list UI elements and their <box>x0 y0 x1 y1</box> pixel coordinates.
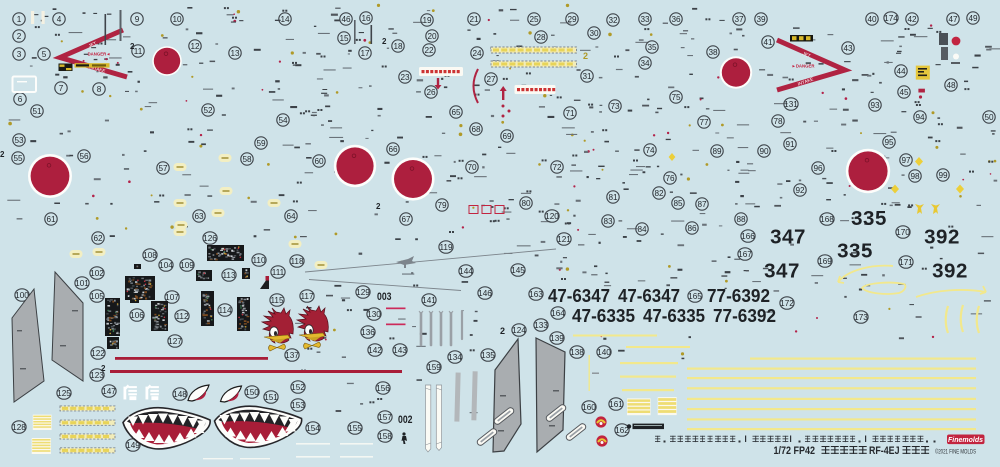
svg-text:8: 8 <box>97 85 102 94</box>
svg-text:44: 44 <box>896 67 906 76</box>
svg-text:118: 118 <box>290 257 303 266</box>
svg-text:77: 77 <box>699 118 709 127</box>
svg-text:20: 20 <box>427 32 437 41</box>
svg-text:22: 22 <box>424 46 434 55</box>
svg-text:77-6392: 77-6392 <box>707 286 770 306</box>
svg-text:148: 148 <box>173 390 187 399</box>
svg-text:41: 41 <box>763 38 773 47</box>
svg-text:32: 32 <box>608 16 618 25</box>
svg-text:84: 84 <box>637 225 647 234</box>
svg-text:121: 121 <box>557 235 571 244</box>
svg-text:1/72 FP42: 1/72 FP42 <box>774 445 816 457</box>
svg-text:65: 65 <box>451 108 461 117</box>
svg-text:134: 134 <box>448 353 462 362</box>
svg-text:127: 127 <box>168 337 182 346</box>
svg-text:69: 69 <box>502 132 512 141</box>
svg-text:6: 6 <box>18 95 23 104</box>
svg-text:172: 172 <box>780 299 794 308</box>
svg-text:70: 70 <box>467 163 477 172</box>
svg-text:168: 168 <box>820 215 834 224</box>
svg-text:18: 18 <box>393 42 403 51</box>
svg-text:77-6392: 77-6392 <box>713 306 776 326</box>
svg-text:45: 45 <box>899 88 909 97</box>
svg-text:15: 15 <box>339 34 349 43</box>
svg-text:2: 2 <box>101 364 106 373</box>
svg-text:392: 392 <box>932 260 968 283</box>
svg-text:96: 96 <box>813 164 823 173</box>
svg-text:DANGER◄: DANGER◄ <box>88 52 111 57</box>
svg-text:60: 60 <box>314 157 324 166</box>
svg-text:14: 14 <box>280 15 290 24</box>
svg-text:57: 57 <box>158 164 168 173</box>
svg-text:63: 63 <box>194 212 204 221</box>
svg-text:66: 66 <box>388 145 398 154</box>
svg-text:335: 335 <box>837 240 873 263</box>
svg-text:93: 93 <box>870 101 880 110</box>
svg-text:144: 144 <box>459 267 473 276</box>
svg-text:26: 26 <box>426 88 436 97</box>
svg-text:125: 125 <box>57 389 71 398</box>
svg-text:115: 115 <box>270 296 283 305</box>
svg-text:87: 87 <box>697 200 707 209</box>
svg-text:►DANGER: ►DANGER <box>792 64 816 69</box>
svg-text:120: 120 <box>545 212 559 221</box>
svg-text:61: 61 <box>46 215 56 224</box>
svg-text:91: 91 <box>785 140 795 149</box>
svg-text:46: 46 <box>341 15 351 24</box>
svg-text:85: 85 <box>673 199 683 208</box>
svg-text:136: 136 <box>361 328 375 337</box>
svg-text:64: 64 <box>286 212 296 221</box>
svg-text:37: 37 <box>734 15 744 24</box>
svg-text:347: 347 <box>770 226 806 249</box>
svg-text:4: 4 <box>57 15 62 24</box>
svg-text:56: 56 <box>79 152 89 161</box>
svg-text:143: 143 <box>393 346 407 355</box>
svg-text:114: 114 <box>218 306 231 315</box>
svg-text:58: 58 <box>242 155 252 164</box>
svg-text:50: 50 <box>984 113 994 122</box>
svg-text:171: 171 <box>899 258 913 267</box>
svg-text:90: 90 <box>759 147 769 156</box>
svg-text:73: 73 <box>610 102 620 111</box>
svg-text:102: 102 <box>90 269 104 278</box>
svg-text:101: 101 <box>75 279 89 288</box>
svg-text:2: 2 <box>382 37 387 46</box>
svg-text:109: 109 <box>180 261 194 270</box>
svg-text:80: 80 <box>521 199 531 208</box>
svg-text:16: 16 <box>361 14 371 23</box>
svg-text:52: 52 <box>203 106 213 115</box>
svg-text:83: 83 <box>603 217 613 226</box>
svg-text:78: 78 <box>773 117 783 126</box>
svg-text:161: 161 <box>609 400 623 409</box>
svg-text:002: 002 <box>398 414 413 426</box>
svg-text:170: 170 <box>896 228 910 237</box>
svg-text:31: 31 <box>582 72 592 81</box>
svg-text:159: 159 <box>427 363 441 372</box>
svg-text:54: 54 <box>278 116 288 125</box>
svg-text:169: 169 <box>818 257 832 266</box>
svg-text:104: 104 <box>159 261 173 270</box>
svg-text:74: 74 <box>645 146 655 155</box>
svg-text:23: 23 <box>400 73 410 82</box>
svg-text:43: 43 <box>843 44 853 53</box>
svg-text:111: 111 <box>272 268 285 277</box>
svg-text:33: 33 <box>640 15 650 24</box>
svg-text:167: 167 <box>738 250 752 259</box>
svg-text:158: 158 <box>378 432 392 441</box>
svg-text:2: 2 <box>0 150 5 159</box>
svg-text:146: 146 <box>478 289 492 298</box>
svg-text:98: 98 <box>910 172 920 181</box>
svg-text:36: 36 <box>671 15 681 24</box>
svg-text:113: 113 <box>222 271 235 280</box>
svg-text:122: 122 <box>91 349 105 358</box>
svg-text:47-6335: 47-6335 <box>572 306 635 326</box>
svg-text:©2021 FINE MOLDS: ©2021 FINE MOLDS <box>935 449 976 456</box>
svg-text:126: 126 <box>203 234 217 243</box>
svg-text:95: 95 <box>884 138 894 147</box>
svg-text:147: 147 <box>102 387 116 396</box>
svg-text:9: 9 <box>135 15 140 24</box>
svg-text:130: 130 <box>367 310 381 319</box>
svg-text:68: 68 <box>471 125 481 134</box>
svg-text:2: 2 <box>583 51 588 61</box>
svg-text:24: 24 <box>472 49 482 58</box>
svg-text:150: 150 <box>245 388 259 397</box>
svg-text:137: 137 <box>285 351 299 360</box>
svg-text:145: 145 <box>511 266 525 275</box>
svg-text:81: 81 <box>608 193 618 202</box>
svg-text:51: 51 <box>32 107 42 116</box>
svg-text:53: 53 <box>14 136 24 145</box>
svg-text:88: 88 <box>736 215 746 224</box>
svg-text:347: 347 <box>764 260 800 283</box>
svg-text:13: 13 <box>230 49 240 58</box>
svg-text:10: 10 <box>172 15 182 24</box>
svg-text:119: 119 <box>439 243 452 252</box>
svg-text:153: 153 <box>291 401 305 410</box>
svg-text:86: 86 <box>687 224 697 233</box>
svg-text:59: 59 <box>256 139 266 148</box>
svg-text:174: 174 <box>884 14 898 23</box>
svg-text:71: 71 <box>565 109 575 118</box>
svg-text:166: 166 <box>741 232 755 241</box>
svg-text:157: 157 <box>378 413 392 422</box>
svg-text:94: 94 <box>915 113 925 122</box>
svg-text:129: 129 <box>356 288 370 297</box>
svg-text:17: 17 <box>360 49 370 58</box>
svg-text:1: 1 <box>17 15 22 24</box>
svg-text:155: 155 <box>348 424 362 433</box>
svg-text:140: 140 <box>597 348 611 357</box>
svg-text:141: 141 <box>422 296 436 305</box>
svg-text:76: 76 <box>665 174 675 183</box>
svg-text:2: 2 <box>500 326 505 336</box>
svg-text:106: 106 <box>130 311 144 320</box>
svg-text:34: 34 <box>640 59 650 68</box>
svg-text:47-6347: 47-6347 <box>618 286 680 306</box>
svg-text:12: 12 <box>190 42 200 51</box>
svg-text:003: 003 <box>377 291 392 303</box>
svg-text:29: 29 <box>567 15 577 24</box>
svg-text:105: 105 <box>90 292 104 301</box>
svg-text:7: 7 <box>59 84 64 93</box>
svg-text:47-6347: 47-6347 <box>548 286 610 306</box>
svg-text:72: 72 <box>552 163 562 172</box>
svg-text:165: 165 <box>688 292 702 301</box>
svg-text:38: 38 <box>708 48 718 57</box>
svg-text:164: 164 <box>551 309 565 318</box>
svg-text:135: 135 <box>481 351 495 360</box>
svg-text:3: 3 <box>17 50 22 59</box>
svg-text:47: 47 <box>948 15 958 24</box>
svg-text:139: 139 <box>550 334 564 343</box>
svg-text:163: 163 <box>529 290 543 299</box>
svg-text:133: 133 <box>534 321 548 330</box>
svg-text:138: 138 <box>570 348 584 357</box>
svg-text:27: 27 <box>486 75 496 84</box>
svg-text:2: 2 <box>376 202 381 211</box>
svg-text:49: 49 <box>968 14 978 23</box>
svg-text:108: 108 <box>143 251 157 260</box>
svg-text:173: 173 <box>854 313 868 322</box>
svg-text:117: 117 <box>300 292 313 301</box>
svg-text:11: 11 <box>134 47 143 56</box>
svg-text:89: 89 <box>712 147 722 156</box>
svg-text:2: 2 <box>130 42 135 51</box>
svg-text:154: 154 <box>306 424 320 433</box>
svg-text:156: 156 <box>376 384 390 393</box>
svg-text:160: 160 <box>582 403 596 412</box>
svg-text:35: 35 <box>647 43 657 52</box>
svg-text:124: 124 <box>512 326 526 335</box>
svg-text:82: 82 <box>654 189 664 198</box>
svg-text:28: 28 <box>536 33 546 42</box>
svg-text:2: 2 <box>17 32 22 41</box>
svg-text:151: 151 <box>264 393 278 402</box>
svg-text:392: 392 <box>924 226 960 249</box>
svg-text:42: 42 <box>907 15 917 24</box>
svg-text:110: 110 <box>252 256 265 265</box>
svg-text:75: 75 <box>671 93 681 102</box>
svg-text:21: 21 <box>469 15 479 24</box>
svg-text:112: 112 <box>175 312 188 321</box>
svg-text:47-6335: 47-6335 <box>643 306 705 326</box>
svg-text:107: 107 <box>165 293 179 302</box>
svg-text:Finemolds: Finemolds <box>948 437 983 444</box>
svg-text:55: 55 <box>13 154 23 163</box>
svg-text:40: 40 <box>867 15 877 24</box>
svg-text:25: 25 <box>529 15 539 24</box>
svg-text:19: 19 <box>422 16 432 25</box>
svg-text:5: 5 <box>42 50 47 59</box>
svg-text:142: 142 <box>368 346 382 355</box>
svg-text:48: 48 <box>946 81 956 90</box>
svg-text:30: 30 <box>589 29 599 38</box>
svg-text:79: 79 <box>437 201 447 210</box>
svg-text:335: 335 <box>851 207 887 230</box>
svg-text:67: 67 <box>401 215 411 224</box>
svg-text:RF-4EJ: RF-4EJ <box>869 445 900 457</box>
svg-text:62: 62 <box>93 234 103 243</box>
svg-text:97: 97 <box>901 156 911 165</box>
svg-text:99: 99 <box>938 171 948 180</box>
svg-text:39: 39 <box>756 15 766 24</box>
svg-text:92: 92 <box>795 186 805 195</box>
svg-text:152: 152 <box>291 383 305 392</box>
